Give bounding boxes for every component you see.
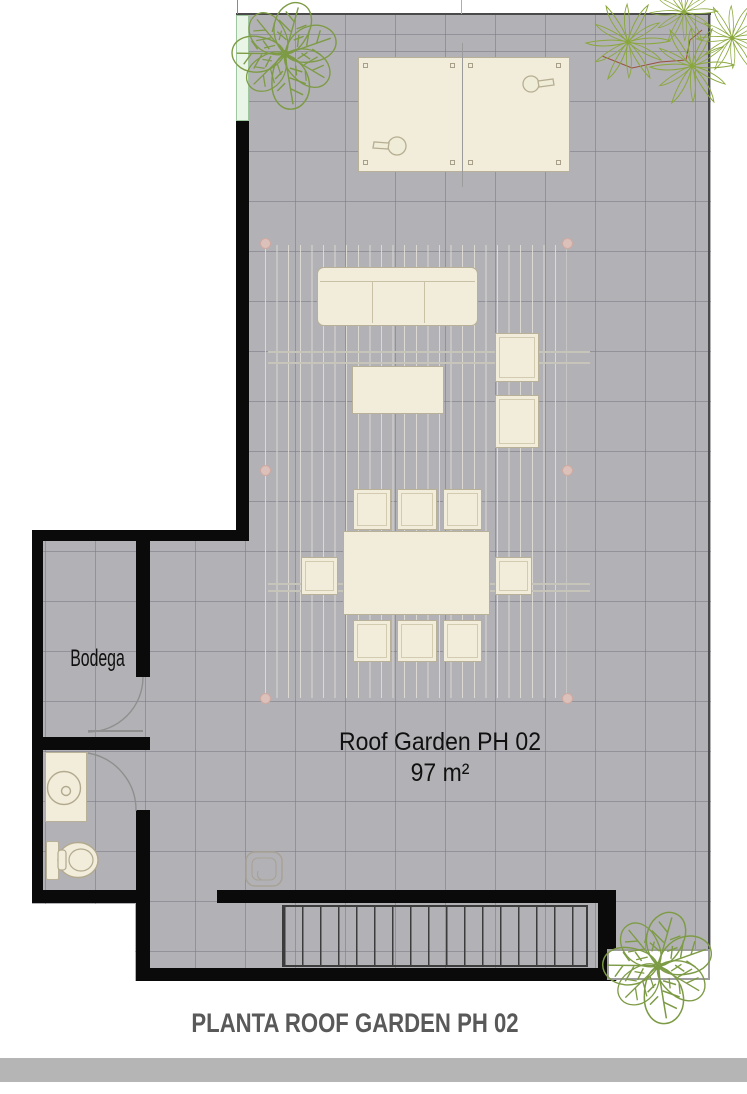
wall-stairwell-bottom: [136, 968, 616, 981]
table-leg: [363, 63, 368, 68]
wall-interior-lower: [136, 810, 150, 981]
pergola-post-marker: [562, 465, 573, 476]
wall-bath-bottom: [32, 890, 136, 903]
plan-title: PLANTA ROOF GARDEN PH 02: [84, 1008, 625, 1039]
ping-pong-net-line: [462, 43, 463, 187]
wall-bodega-bottom: [32, 737, 150, 750]
pergola-post-marker: [260, 465, 271, 476]
wall-bodega-left: [32, 541, 43, 750]
floor-plan: Bodega Roof Garden PH 02 97 m² PLANTA RO…: [0, 0, 747, 1094]
table-leg: [556, 63, 561, 68]
parapet-top-edge: [236, 13, 711, 15]
dining-chair: [443, 620, 482, 662]
table-leg: [556, 160, 561, 165]
armchair: [495, 333, 539, 382]
parapet-right-edge: [708, 13, 710, 949]
glass-window-strip: [236, 15, 249, 121]
roof-garden-area: 97 m²: [302, 758, 578, 789]
pergola-beam: [268, 362, 590, 364]
sofa-back-line: [320, 281, 475, 282]
dining-chair: [397, 620, 437, 662]
table-leg: [363, 160, 368, 165]
ping-pong-table: [358, 57, 570, 172]
axis-stub-line: [461, 0, 462, 14]
planter-box: [607, 949, 710, 980]
vanity-counter: [45, 752, 87, 822]
roof-garden-name: Roof Garden PH 02: [302, 727, 578, 758]
dining-chair: [397, 489, 437, 530]
table-leg: [468, 160, 473, 165]
wall-stairwell-top: [217, 890, 616, 903]
sofa-cushion-divider: [372, 282, 373, 323]
roof-garden-label: Roof Garden PH 02 97 m²: [302, 727, 578, 789]
table-leg: [468, 63, 473, 68]
pergola-post-marker: [562, 238, 573, 249]
sofa: [317, 267, 478, 326]
dining-chair: [495, 557, 532, 595]
table-leg: [450, 160, 455, 165]
bodega-room-label: Bodega: [69, 645, 125, 673]
dining-chair: [353, 620, 391, 662]
dining-chair: [443, 489, 482, 530]
stairs: [282, 905, 588, 967]
pergola-post-marker: [260, 238, 271, 249]
armchair: [495, 395, 539, 448]
footer-bar: [0, 1058, 747, 1082]
axis-stub-line: [237, 0, 238, 14]
table-leg: [450, 63, 455, 68]
wall-left-main: [236, 121, 249, 541]
dining-table: [343, 531, 490, 615]
toilet-tank: [46, 841, 59, 880]
wall-bath-left: [32, 750, 43, 903]
dining-chair: [301, 557, 338, 595]
pergola-post-marker: [562, 693, 573, 704]
wall-interior-upper: [136, 541, 150, 677]
dining-chair: [353, 489, 391, 530]
sofa-cushion-divider: [424, 282, 425, 323]
coffee-table: [352, 366, 444, 414]
pergola-post-marker: [260, 693, 271, 704]
wall-bodega-top: [32, 530, 249, 541]
pergola-beam: [268, 351, 590, 353]
